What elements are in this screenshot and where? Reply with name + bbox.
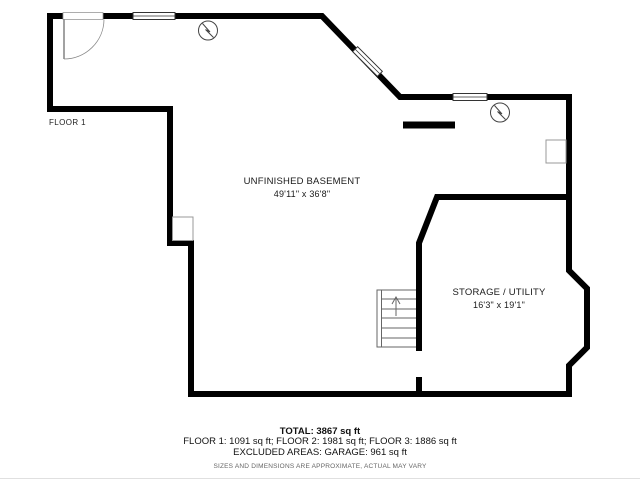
room-name: STORAGE / UTILITY: [418, 286, 580, 299]
staircase: [377, 290, 416, 347]
exterior-wall: [50, 16, 587, 394]
door-swing-arc: [64, 20, 104, 60]
floorplan-drawing: [0, 0, 640, 480]
door-opening: [63, 13, 103, 20]
entry-door: [63, 13, 104, 60]
storage-partition-wall: [419, 197, 569, 351]
equipment-box: [173, 217, 194, 241]
stair-up-arrow-icon: [392, 297, 400, 316]
window: [133, 13, 175, 20]
disclaimer-text: SIZES AND DIMENSIONS ARE APPROXIMATE, AC…: [0, 463, 640, 470]
floorplan-canvas: FLOOR 1 UNFINISHED BASEMENT 49'11" x 36'…: [0, 0, 640, 480]
area-summary: TOTAL: 3867 sq ft FLOOR 1: 1091 sq ft; F…: [0, 426, 640, 470]
detector-icon: [199, 21, 218, 40]
floor-areas-text: FLOOR 1: 1091 sq ft; FLOOR 2: 1981 sq ft…: [0, 437, 640, 448]
detector-icon: [491, 103, 510, 122]
room-label-unfinished-basement: UNFINISHED BASEMENT 49'11" x 36'8": [221, 175, 383, 201]
level-label: FLOOR 1: [49, 118, 86, 127]
window: [453, 94, 487, 101]
room-dimensions: 16'3" x 19'1": [418, 299, 580, 312]
room-dimensions: 49'11" x 36'8": [221, 188, 383, 201]
excluded-areas-text: EXCLUDED AREAS: GARAGE: 961 sq ft: [0, 448, 640, 459]
room-label-storage-utility: STORAGE / UTILITY 16'3" x 19'1": [418, 286, 580, 312]
room-name: UNFINISHED BASEMENT: [221, 175, 383, 188]
equipment-box: [546, 140, 566, 163]
stair-handrail: [377, 290, 382, 347]
window: [353, 47, 383, 77]
